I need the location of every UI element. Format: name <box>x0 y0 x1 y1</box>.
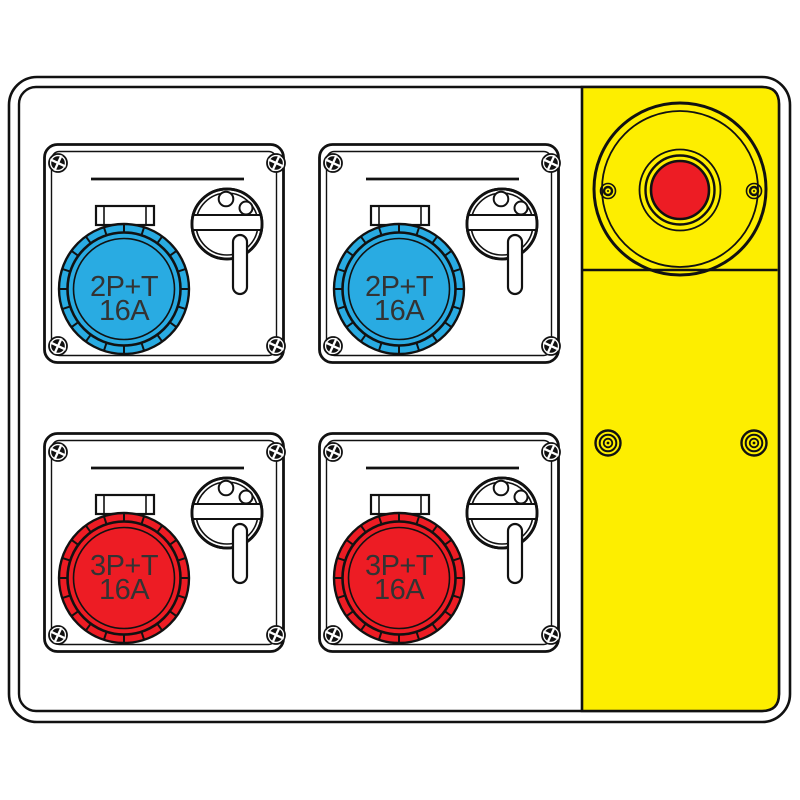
socket-module-bottom-left[interactable] <box>45 434 288 652</box>
rating-line2: 16A <box>90 299 158 323</box>
rating-line2: 16A <box>90 578 158 602</box>
socket-rating-label-top-left: 2P+T 16A <box>90 275 158 323</box>
panel-rivet-right <box>742 431 767 456</box>
socket-rating-label-top-right: 2P+T 16A <box>365 275 433 323</box>
emergency-button-cap[interactable] <box>651 161 709 219</box>
socket-rating-label-bottom-right: 3P+T 16A <box>365 554 433 602</box>
emergency-stop-panel <box>582 87 779 711</box>
panel-rivet-left <box>596 431 621 456</box>
distribution-box-illustration: 2P+T 16A 2P+T 16A 3P+T 16A 3P+T 16A <box>0 0 800 800</box>
line-art <box>0 0 800 800</box>
rating-line2: 16A <box>365 578 433 602</box>
rating-line2: 16A <box>365 299 433 323</box>
socket-module-top-left[interactable] <box>45 145 288 363</box>
socket-rating-label-bottom-left: 3P+T 16A <box>90 554 158 602</box>
socket-module-bottom-right[interactable] <box>320 434 563 652</box>
socket-module-top-right[interactable] <box>320 145 563 363</box>
